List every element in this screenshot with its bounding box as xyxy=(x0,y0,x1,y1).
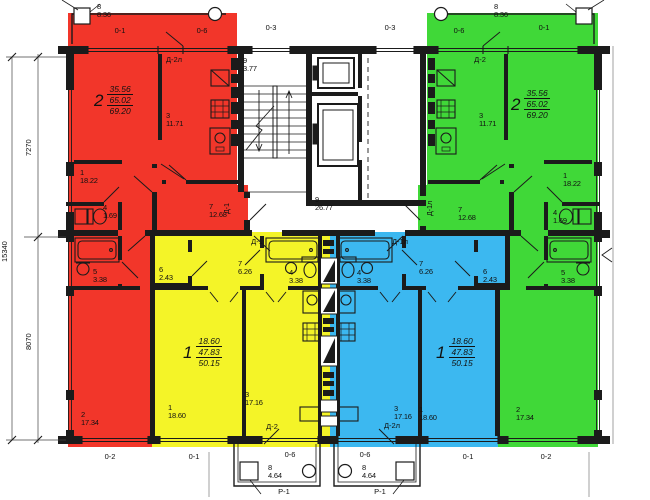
area-value: 35.56 xyxy=(524,88,549,99)
room-label: 88.36 xyxy=(97,3,111,19)
apartment-areas: 35.5665.0269.20 xyxy=(524,88,549,120)
room-label: 93.77 xyxy=(243,57,257,73)
door-mark: Д-2 xyxy=(474,56,486,64)
room-area: 3.38 xyxy=(289,277,303,285)
window-mark: 0-3 xyxy=(266,24,277,32)
apartment-number: 1 xyxy=(436,344,445,361)
room-label: 317.16 xyxy=(245,391,263,407)
door-mark: Д-1 xyxy=(251,238,263,246)
room-area: 8.36 xyxy=(494,11,508,19)
room-label: 41.69 xyxy=(553,209,567,225)
area-value: 69.20 xyxy=(524,110,549,120)
window-mark: 0-1 xyxy=(115,27,126,35)
window-mark: 0-2 xyxy=(541,453,552,461)
door-mark: Д-2л xyxy=(384,422,400,430)
door-mark-vertical: Д-1 xyxy=(224,203,231,214)
porch-mark: Р-1 xyxy=(278,488,290,496)
room-label: 53.38 xyxy=(561,269,575,285)
room-label: 62.43 xyxy=(159,266,173,282)
area-value: 65.02 xyxy=(107,95,132,106)
room-area: 1.69 xyxy=(103,212,117,220)
room-label: 217.34 xyxy=(81,411,99,427)
room-label: 84.64 xyxy=(268,464,282,480)
room-area: 12.68 xyxy=(458,214,476,222)
area-value: 47.83 xyxy=(196,347,221,358)
apartment-number: 2 xyxy=(94,92,103,109)
room-area: 2.43 xyxy=(159,274,173,282)
room-label: 84.64 xyxy=(362,464,376,480)
room-label: 118.60 xyxy=(419,406,437,422)
area-value: 65.02 xyxy=(524,99,549,110)
room-area: 18.22 xyxy=(563,180,581,188)
area-value: 50.15 xyxy=(449,358,474,368)
window-mark: 0-1 xyxy=(539,24,550,32)
annotation-layer: 88.3688.3693.77926.77311.71311.71118.221… xyxy=(0,0,650,500)
dimension-label: 7270 xyxy=(25,139,33,156)
door-mark: Д-2л xyxy=(166,56,182,64)
room-label: 118.22 xyxy=(563,172,581,188)
room-area: 2.43 xyxy=(483,276,497,284)
apartment-label-red: 235.5665.0269.20 xyxy=(94,84,133,116)
apartment-label-blue: 118.6047.8350.15 xyxy=(436,336,475,368)
room-label: 43.38 xyxy=(357,269,371,285)
room-label: 76.26 xyxy=(419,260,433,276)
apartment-areas: 18.6047.8350.15 xyxy=(449,336,474,368)
room-label: 217.34 xyxy=(516,406,534,422)
door-mark-vertical: Д-1л xyxy=(427,201,434,216)
room-area: 17.34 xyxy=(516,414,534,422)
window-mark: 0-1 xyxy=(189,453,200,461)
room-area: 6.26 xyxy=(419,268,433,276)
room-label: 88.36 xyxy=(494,3,508,19)
room-area: 3.38 xyxy=(561,277,575,285)
room-area: 18.60 xyxy=(168,412,186,420)
room-area: 4.64 xyxy=(362,472,376,480)
room-label: 76.26 xyxy=(238,260,252,276)
room-area: 11.71 xyxy=(479,120,496,128)
window-mark: 0-6 xyxy=(197,27,208,35)
room-area: 8.36 xyxy=(97,11,111,19)
area-value: 47.83 xyxy=(449,347,474,358)
area-value: 35.56 xyxy=(107,84,132,95)
apartment-number: 2 xyxy=(511,96,520,113)
room-area: 11.71 xyxy=(166,120,183,128)
area-value: 69.20 xyxy=(107,106,132,116)
door-mark: Д-1л xyxy=(392,238,408,246)
dimension-label: 15340 xyxy=(1,241,9,262)
room-area: 3.38 xyxy=(357,277,371,285)
area-value: 50.15 xyxy=(196,358,221,368)
room-area: 3.38 xyxy=(93,276,107,284)
window-mark: 0-1 xyxy=(463,453,474,461)
room-label: 62.43 xyxy=(483,268,497,284)
window-mark: 0-6 xyxy=(454,27,465,35)
apartment-number: 1 xyxy=(183,344,192,361)
room-area: 17.16 xyxy=(245,399,263,407)
room-label: 311.71 xyxy=(166,112,183,128)
room-label: 311.71 xyxy=(479,112,496,128)
room-area: 17.34 xyxy=(81,419,99,427)
room-label: 43.38 xyxy=(289,269,303,285)
area-value: 18.60 xyxy=(449,336,474,347)
room-area: 18.60 xyxy=(419,414,437,422)
window-mark: 0-3 xyxy=(385,24,396,32)
room-area: 18.22 xyxy=(80,177,98,185)
room-area: 3.77 xyxy=(243,65,257,73)
room-area: 1.69 xyxy=(553,217,567,225)
apartment-label-green: 235.5665.0269.20 xyxy=(511,88,550,120)
dimension-label: 8070 xyxy=(25,333,33,350)
apartment-areas: 18.6047.8350.15 xyxy=(196,336,221,368)
floor-plan-canvas: 88.3688.3693.77926.77311.71311.71118.221… xyxy=(0,0,650,500)
window-mark: 0-6 xyxy=(360,451,371,459)
room-label: 926.77 xyxy=(315,196,333,212)
room-area: 6.26 xyxy=(238,268,252,276)
room-label: 712.68 xyxy=(458,206,476,222)
window-mark: 0-6 xyxy=(285,451,296,459)
room-area: 26.77 xyxy=(315,204,333,212)
room-area: 4.64 xyxy=(268,472,282,480)
porch-mark: Р-1 xyxy=(374,488,386,496)
room-label: 53.38 xyxy=(93,268,107,284)
window-mark: 0-2 xyxy=(105,453,116,461)
area-value: 18.60 xyxy=(196,336,221,347)
apartment-areas: 35.5665.0269.20 xyxy=(107,84,132,116)
room-label: 118.22 xyxy=(80,169,98,185)
room-area: 17.16 xyxy=(394,413,412,421)
door-mark: Д-2 xyxy=(266,423,278,431)
apartment-label-yellow: 118.6047.8350.15 xyxy=(183,336,222,368)
room-label: 317.16 xyxy=(394,405,412,421)
room-label: 118.60 xyxy=(168,404,186,420)
room-label: 41.69 xyxy=(103,204,117,220)
